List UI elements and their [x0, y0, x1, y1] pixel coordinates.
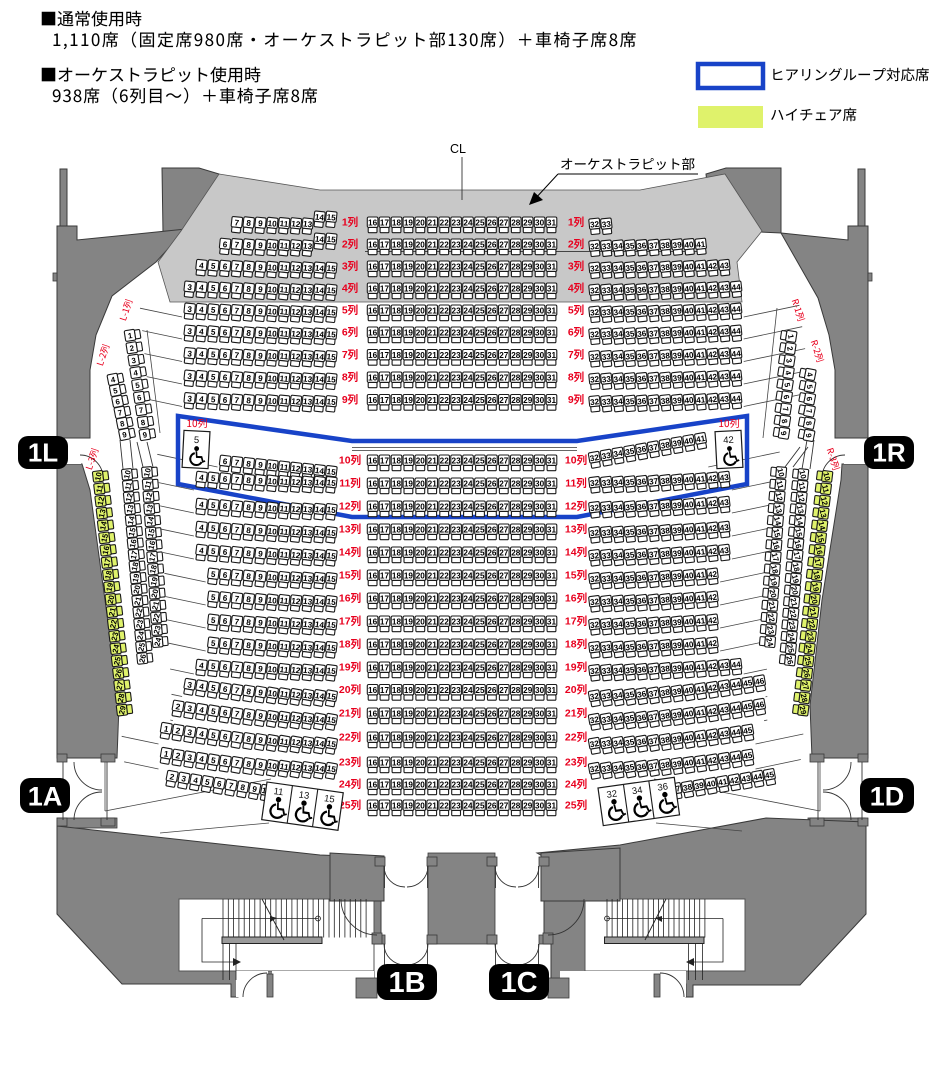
svg-text:12: 12: [291, 307, 301, 317]
svg-text:32: 32: [589, 528, 600, 538]
svg-text:24: 24: [463, 307, 473, 316]
svg-text:26: 26: [487, 734, 497, 743]
svg-text:11: 11: [279, 550, 289, 560]
svg-text:34: 34: [613, 263, 623, 273]
svg-text:31: 31: [547, 329, 557, 338]
svg-text:19: 19: [404, 480, 414, 489]
svg-text:15列: 15列: [339, 569, 361, 582]
svg-text:26: 26: [487, 664, 497, 673]
svg-text:17列: 17列: [565, 615, 587, 628]
svg-text:42: 42: [708, 327, 718, 337]
svg-text:25: 25: [475, 503, 485, 512]
svg-text:30: 30: [535, 618, 545, 627]
svg-text:21: 21: [428, 457, 438, 466]
svg-text:14: 14: [314, 551, 325, 561]
svg-text:23: 23: [452, 526, 462, 535]
svg-text:17: 17: [380, 759, 390, 768]
svg-text:16: 16: [368, 734, 378, 743]
svg-text:42: 42: [708, 305, 718, 315]
svg-text:23列: 23列: [339, 756, 361, 769]
svg-text:36: 36: [637, 374, 647, 384]
svg-text:27: 27: [499, 759, 509, 768]
svg-text:25: 25: [475, 480, 485, 489]
svg-text:41: 41: [696, 474, 707, 484]
svg-text:13: 13: [303, 397, 313, 407]
svg-text:16: 16: [368, 457, 378, 466]
svg-text:29: 29: [523, 549, 533, 558]
svg-text:34: 34: [613, 643, 624, 653]
svg-text:37: 37: [648, 596, 659, 606]
svg-text:28: 28: [511, 351, 521, 360]
svg-text:19: 19: [404, 686, 414, 695]
svg-text:20: 20: [416, 686, 426, 695]
svg-text:27: 27: [499, 664, 509, 673]
svg-text:44: 44: [731, 372, 741, 382]
svg-text:12: 12: [291, 219, 301, 229]
svg-text:34: 34: [613, 551, 624, 561]
svg-text:30: 30: [535, 219, 545, 228]
svg-text:15: 15: [326, 352, 336, 362]
svg-text:21: 21: [428, 480, 438, 489]
svg-text:24: 24: [463, 457, 473, 466]
svg-text:29: 29: [523, 480, 533, 489]
svg-text:3列: 3列: [342, 260, 358, 273]
svg-text:36: 36: [637, 619, 648, 629]
svg-text:43: 43: [719, 261, 729, 271]
svg-text:19: 19: [404, 595, 414, 604]
svg-text:29: 29: [523, 457, 533, 466]
svg-text:13: 13: [303, 285, 313, 295]
svg-text:40: 40: [684, 548, 695, 558]
svg-text:41: 41: [696, 395, 706, 405]
svg-text:27: 27: [499, 374, 509, 383]
svg-text:11: 11: [279, 504, 289, 514]
svg-text:38: 38: [660, 595, 671, 605]
svg-text:33: 33: [601, 597, 612, 607]
svg-text:22列: 22列: [339, 731, 361, 744]
svg-text:19列: 19列: [565, 661, 587, 674]
svg-text:35: 35: [625, 263, 635, 273]
svg-text:34: 34: [613, 574, 624, 584]
svg-text:42: 42: [707, 593, 718, 603]
svg-text:21: 21: [428, 686, 438, 695]
svg-text:44: 44: [731, 394, 741, 404]
svg-text:40: 40: [684, 475, 695, 485]
svg-text:12列: 12列: [339, 500, 361, 513]
svg-text:41: 41: [696, 570, 707, 580]
svg-text:16: 16: [368, 219, 378, 228]
svg-text:20: 20: [416, 734, 426, 743]
svg-text:44: 44: [731, 305, 741, 315]
svg-text:23: 23: [452, 241, 462, 250]
svg-text:36: 36: [637, 550, 648, 560]
svg-text:13: 13: [303, 352, 313, 362]
svg-text:16: 16: [368, 595, 378, 604]
svg-text:2列: 2列: [342, 238, 358, 251]
svg-text:28: 28: [511, 374, 521, 383]
svg-text:28: 28: [511, 480, 521, 489]
svg-text:24: 24: [463, 480, 473, 489]
svg-text:23: 23: [452, 618, 462, 627]
svg-text:27: 27: [499, 351, 509, 360]
svg-text:14: 14: [314, 597, 325, 607]
svg-text:19: 19: [404, 734, 414, 743]
svg-text:35: 35: [625, 374, 635, 384]
svg-text:24: 24: [463, 641, 473, 650]
svg-text:18: 18: [392, 285, 402, 294]
svg-text:23列: 23列: [565, 756, 587, 769]
svg-text:11: 11: [279, 665, 289, 675]
svg-text:31: 31: [547, 572, 557, 581]
svg-text:37: 37: [649, 351, 659, 361]
svg-text:13: 13: [303, 307, 313, 317]
svg-text:18列: 18列: [565, 638, 587, 651]
svg-text:19: 19: [404, 329, 414, 338]
svg-text:17: 17: [380, 641, 390, 650]
svg-text:14: 14: [314, 352, 324, 362]
svg-text:20: 20: [416, 572, 426, 581]
svg-text:37: 37: [648, 527, 659, 537]
svg-text:16: 16: [368, 396, 378, 405]
svg-text:29: 29: [523, 329, 533, 338]
svg-text:19: 19: [404, 396, 414, 405]
svg-text:31: 31: [547, 595, 557, 604]
svg-text:37: 37: [648, 573, 659, 583]
svg-text:28: 28: [511, 503, 521, 512]
svg-text:29: 29: [523, 802, 533, 811]
svg-text:31: 31: [547, 285, 557, 294]
svg-text:27: 27: [499, 641, 509, 650]
svg-text:11列: 11列: [565, 477, 587, 490]
svg-text:40: 40: [684, 351, 694, 361]
svg-text:34: 34: [631, 785, 643, 797]
svg-text:36: 36: [637, 642, 648, 652]
svg-text:36: 36: [637, 397, 647, 407]
svg-text:31: 31: [547, 263, 557, 272]
svg-text:31: 31: [547, 549, 557, 558]
svg-text:35: 35: [625, 550, 636, 560]
svg-text:36: 36: [637, 596, 648, 606]
svg-text:28: 28: [511, 263, 521, 272]
svg-text:22: 22: [440, 480, 450, 489]
svg-text:25: 25: [475, 802, 485, 811]
svg-text:18: 18: [392, 759, 402, 768]
svg-text:18: 18: [392, 263, 402, 272]
svg-text:33: 33: [601, 397, 611, 407]
svg-text:25: 25: [475, 664, 485, 673]
svg-text:30: 30: [535, 759, 545, 768]
svg-text:31: 31: [547, 664, 557, 673]
svg-text:29: 29: [523, 781, 533, 790]
svg-text:29: 29: [523, 503, 533, 512]
svg-text:26: 26: [487, 219, 497, 228]
svg-text:21: 21: [428, 734, 438, 743]
svg-text:13: 13: [303, 374, 313, 384]
svg-text:38: 38: [660, 549, 671, 559]
svg-text:29: 29: [523, 618, 533, 627]
svg-text:23: 23: [452, 595, 462, 604]
svg-text:27: 27: [499, 263, 509, 272]
svg-text:18: 18: [392, 572, 402, 581]
svg-text:18: 18: [392, 503, 402, 512]
svg-text:14: 14: [314, 466, 325, 476]
svg-text:12: 12: [291, 527, 302, 537]
svg-text:42: 42: [708, 372, 718, 382]
svg-text:26: 26: [487, 710, 497, 719]
svg-text:30: 30: [535, 781, 545, 790]
svg-text:26: 26: [487, 686, 497, 695]
svg-text:13: 13: [303, 478, 314, 488]
svg-text:4列: 4列: [342, 282, 358, 295]
svg-text:14: 14: [314, 528, 325, 538]
svg-text:12: 12: [291, 596, 302, 606]
svg-text:24: 24: [463, 710, 473, 719]
svg-text:13列: 13列: [565, 523, 587, 536]
svg-text:21: 21: [428, 595, 438, 604]
svg-text:40: 40: [684, 284, 694, 294]
svg-text:30: 30: [535, 374, 545, 383]
svg-text:34: 34: [613, 666, 624, 676]
svg-text:41: 41: [696, 499, 707, 509]
svg-text:15: 15: [326, 308, 336, 318]
svg-text:20: 20: [416, 263, 426, 272]
svg-text:23: 23: [452, 549, 462, 558]
svg-text:26: 26: [487, 351, 497, 360]
svg-text:22: 22: [440, 710, 450, 719]
svg-text:17: 17: [380, 572, 390, 581]
svg-text:28: 28: [511, 686, 521, 695]
svg-text:6列: 6列: [342, 326, 358, 339]
svg-text:37: 37: [649, 263, 659, 273]
svg-text:18: 18: [392, 329, 402, 338]
svg-text:25: 25: [475, 263, 485, 272]
svg-text:16: 16: [368, 351, 378, 360]
svg-text:33: 33: [601, 528, 612, 538]
svg-text:25: 25: [475, 307, 485, 316]
svg-text:27: 27: [499, 396, 509, 405]
svg-text:28: 28: [511, 595, 521, 604]
svg-text:16: 16: [368, 526, 378, 535]
svg-text:15: 15: [326, 505, 337, 515]
svg-text:29: 29: [523, 710, 533, 719]
svg-text:1B: 1B: [388, 967, 425, 999]
svg-text:32: 32: [590, 308, 600, 318]
svg-text:13: 13: [303, 505, 314, 515]
svg-text:41: 41: [696, 284, 706, 294]
svg-text:30: 30: [535, 572, 545, 581]
svg-text:39: 39: [672, 284, 682, 294]
svg-text:20: 20: [416, 285, 426, 294]
svg-text:33: 33: [601, 330, 611, 340]
svg-text:30: 30: [535, 503, 545, 512]
svg-text:17: 17: [380, 734, 390, 743]
svg-text:13: 13: [298, 790, 310, 802]
svg-text:12: 12: [291, 464, 302, 474]
svg-text:19: 19: [404, 219, 414, 228]
svg-text:CL: CL: [450, 142, 466, 156]
svg-text:33: 33: [601, 286, 611, 296]
svg-text:20: 20: [416, 351, 426, 360]
svg-text:20: 20: [416, 307, 426, 316]
svg-text:20: 20: [416, 526, 426, 535]
svg-text:22: 22: [440, 285, 450, 294]
svg-text:38: 38: [660, 396, 670, 406]
svg-text:16: 16: [368, 374, 378, 383]
svg-text:33: 33: [601, 620, 612, 630]
svg-text:28: 28: [511, 396, 521, 405]
svg-text:13: 13: [303, 465, 314, 475]
svg-text:21: 21: [428, 263, 438, 272]
svg-text:17: 17: [380, 457, 390, 466]
svg-text:25: 25: [475, 759, 485, 768]
svg-text:18: 18: [392, 396, 402, 405]
svg-text:33: 33: [601, 308, 611, 318]
svg-text:23: 23: [452, 686, 462, 695]
svg-text:17: 17: [380, 686, 390, 695]
svg-text:26: 26: [487, 396, 497, 405]
svg-text:15: 15: [326, 528, 337, 538]
svg-text:31: 31: [547, 734, 557, 743]
svg-text:39: 39: [672, 240, 682, 250]
svg-text:35: 35: [625, 527, 636, 537]
svg-text:23: 23: [452, 503, 462, 512]
svg-text:41: 41: [696, 306, 706, 316]
svg-text:18: 18: [392, 241, 402, 250]
svg-text:40: 40: [684, 262, 694, 272]
svg-text:15: 15: [326, 213, 336, 223]
svg-text:5列: 5列: [342, 304, 358, 317]
svg-text:24: 24: [463, 396, 473, 405]
svg-text:10: 10: [267, 285, 277, 295]
svg-text:28: 28: [511, 307, 521, 316]
svg-text:20: 20: [416, 374, 426, 383]
svg-text:29: 29: [523, 285, 533, 294]
svg-text:37: 37: [648, 550, 659, 560]
svg-text:16: 16: [368, 759, 378, 768]
svg-text:42: 42: [707, 524, 718, 534]
svg-text:24: 24: [463, 329, 473, 338]
svg-text:35: 35: [625, 352, 635, 362]
svg-text:7列: 7列: [342, 348, 358, 361]
svg-text:37: 37: [648, 502, 659, 512]
svg-text:10: 10: [267, 665, 278, 675]
svg-text:41: 41: [696, 593, 707, 603]
svg-text:12: 12: [291, 619, 302, 629]
svg-text:26: 26: [487, 241, 497, 250]
svg-text:29: 29: [523, 664, 533, 673]
svg-text:22: 22: [440, 263, 450, 272]
svg-text:19: 19: [404, 664, 414, 673]
svg-text:33: 33: [601, 503, 612, 513]
svg-text:43: 43: [719, 498, 730, 508]
svg-text:25: 25: [475, 595, 485, 604]
svg-text:19: 19: [404, 572, 414, 581]
svg-text:31: 31: [547, 307, 557, 316]
svg-text:5: 5: [194, 435, 200, 446]
svg-text:32: 32: [590, 264, 600, 274]
svg-text:33: 33: [601, 220, 611, 230]
svg-text:29: 29: [523, 351, 533, 360]
svg-text:39: 39: [672, 526, 683, 536]
svg-text:19: 19: [404, 618, 414, 627]
svg-text:14: 14: [314, 643, 325, 653]
svg-text:25: 25: [475, 374, 485, 383]
svg-text:32: 32: [590, 220, 600, 230]
svg-text:32: 32: [589, 666, 600, 676]
svg-text:16列: 16列: [565, 592, 587, 605]
svg-text:1R: 1R: [872, 438, 905, 468]
svg-text:28: 28: [511, 734, 521, 743]
svg-text:39: 39: [672, 396, 682, 406]
svg-text:38: 38: [660, 241, 670, 251]
svg-text:30: 30: [535, 351, 545, 360]
svg-text:22: 22: [440, 503, 450, 512]
svg-text:20: 20: [416, 664, 426, 673]
svg-text:27: 27: [499, 734, 509, 743]
svg-text:11: 11: [279, 596, 289, 606]
svg-text:16: 16: [368, 802, 378, 811]
svg-text:12: 12: [291, 504, 302, 514]
svg-text:38: 38: [660, 351, 670, 361]
svg-text:42: 42: [708, 350, 718, 360]
svg-text:43: 43: [719, 523, 730, 533]
svg-text:11: 11: [279, 477, 289, 487]
svg-text:33: 33: [601, 666, 612, 676]
svg-text:22: 22: [440, 664, 450, 673]
svg-text:20: 20: [416, 781, 426, 790]
svg-text:38: 38: [660, 476, 671, 486]
svg-text:35: 35: [625, 502, 636, 512]
svg-text:42: 42: [708, 261, 718, 271]
svg-text:22: 22: [440, 781, 450, 790]
svg-text:36: 36: [637, 285, 647, 295]
svg-text:21: 21: [428, 241, 438, 250]
svg-text:14: 14: [314, 478, 325, 488]
svg-text:1D: 1D: [870, 781, 905, 811]
svg-text:42: 42: [707, 662, 718, 672]
svg-text:30: 30: [535, 480, 545, 489]
svg-text:20列: 20列: [339, 683, 361, 696]
svg-text:21: 21: [428, 802, 438, 811]
svg-text:15: 15: [326, 666, 337, 676]
svg-text:34: 34: [613, 374, 623, 384]
svg-text:10: 10: [267, 263, 277, 273]
svg-text:16列: 16列: [339, 592, 361, 605]
svg-text:19: 19: [404, 503, 414, 512]
svg-text:27: 27: [499, 329, 509, 338]
svg-text:37: 37: [648, 642, 659, 652]
svg-text:26: 26: [487, 263, 497, 272]
svg-text:28: 28: [511, 219, 521, 228]
svg-text:35: 35: [625, 596, 636, 606]
svg-text:29: 29: [523, 307, 533, 316]
svg-text:34: 34: [613, 620, 624, 630]
svg-text:30: 30: [535, 802, 545, 811]
svg-text:26: 26: [487, 618, 497, 627]
svg-text:30: 30: [535, 526, 545, 535]
svg-text:13: 13: [303, 263, 313, 273]
svg-text:23: 23: [452, 781, 462, 790]
svg-text:16: 16: [368, 641, 378, 650]
svg-text:16: 16: [368, 664, 378, 673]
svg-text:30: 30: [535, 549, 545, 558]
svg-text:1列: 1列: [342, 216, 358, 229]
svg-text:18列: 18列: [339, 638, 361, 651]
svg-text:15: 15: [326, 478, 337, 488]
svg-text:40: 40: [684, 640, 695, 650]
svg-text:35: 35: [625, 619, 636, 629]
svg-text:10: 10: [267, 527, 278, 537]
